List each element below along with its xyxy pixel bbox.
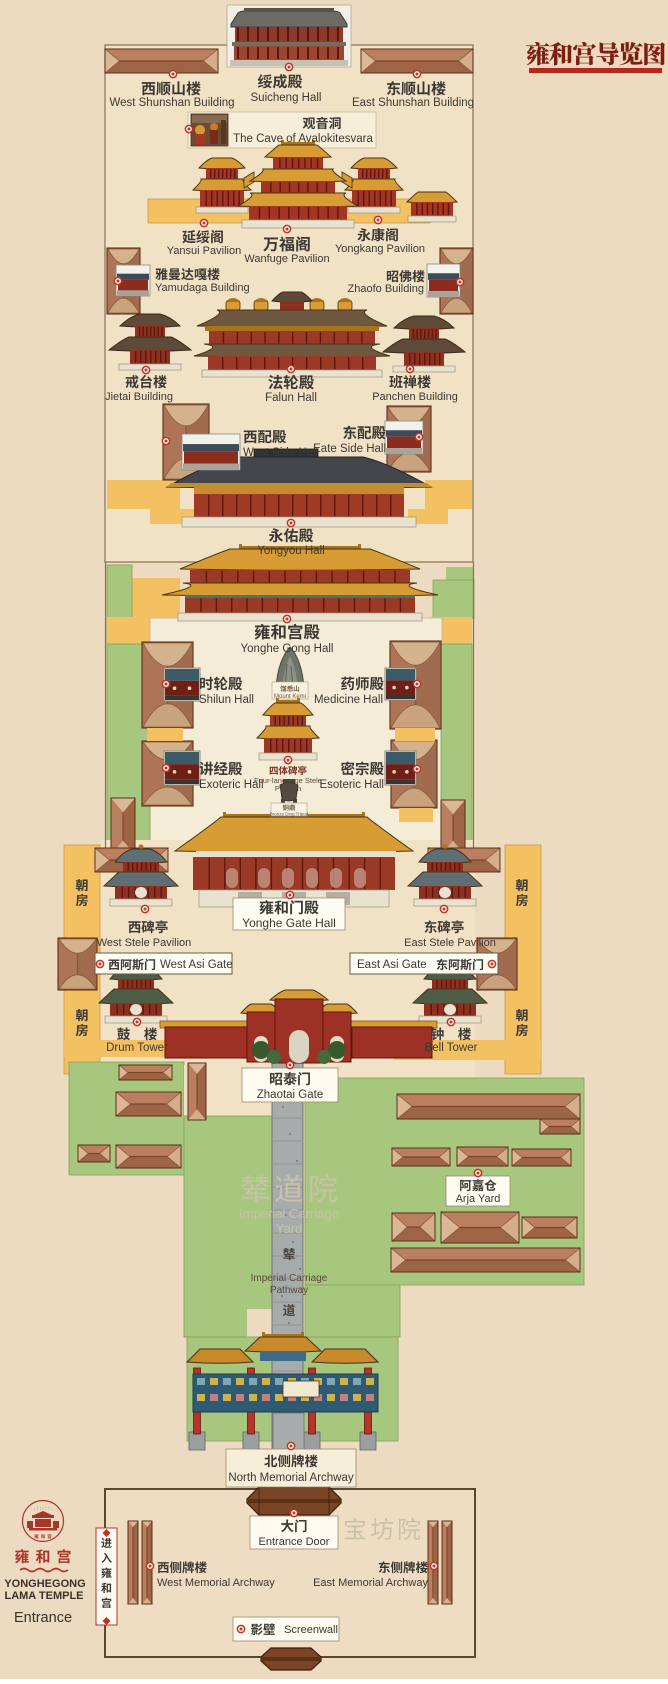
svg-text:West Stele Pavilion: West Stele Pavilion [97, 937, 192, 949]
svg-text:Medicine Hall: Medicine Hall [314, 694, 383, 706]
svg-text:YONGHEGONG: YONGHEGONG [4, 1578, 85, 1590]
svg-text:Yongyou Hall: Yongyou Hall [257, 545, 324, 557]
svg-text:Yamudaga Building: Yamudaga Building [155, 282, 250, 294]
svg-text:Shilun Hall: Shilun Hall [199, 694, 254, 706]
svg-text:Drum Tower: Drum Tower [106, 1042, 168, 1054]
svg-text:Imperial Carriage: Imperial Carriage [239, 1206, 339, 1221]
svg-text:LAMA TEMPLE: LAMA TEMPLE [4, 1590, 83, 1602]
svg-text:Suicheng Hall: Suicheng Hall [251, 92, 322, 104]
svg-text:East Stele Pavilion: East Stele Pavilion [404, 937, 496, 949]
svg-text:Panchen Building: Panchen Building [372, 391, 458, 403]
svg-text:Falun Hall: Falun Hall [265, 392, 317, 404]
svg-text:Screenwall: Screenwall [284, 1624, 338, 1636]
svg-text:The Cave of Avalokitesvara: The Cave of Avalokitesvara [233, 133, 373, 145]
svg-text:Jietai Building: Jietai Building [105, 391, 173, 403]
svg-text:Exoteric Hall: Exoteric Hall [199, 779, 264, 791]
svg-text:Bronze Ding Tripod: Bronze Ding Tripod [270, 812, 309, 817]
svg-text:Arja Yard: Arja Yard [456, 1193, 501, 1205]
svg-text:Pavilion: Pavilion [275, 784, 301, 793]
svg-text:Yansui Pavilion: Yansui Pavilion [167, 245, 241, 257]
svg-text:Eate Side Hall: Eate Side Hall [313, 443, 386, 455]
svg-text:Pathway: Pathway [270, 1285, 308, 1296]
svg-text:Zhaotai Gate: Zhaotai Gate [257, 1089, 323, 1101]
svg-text:Bell Tower: Bell Tower [425, 1042, 478, 1054]
svg-text:Wanfuge Pavilion: Wanfuge Pavilion [244, 253, 329, 265]
svg-text:Yard: Yard [276, 1221, 303, 1236]
svg-text:West Side Hall: West Side Hall [243, 447, 318, 459]
svg-text:Yongkang Pavilion: Yongkang Pavilion [335, 243, 425, 255]
svg-text:West Shunshan Building: West Shunshan Building [109, 97, 234, 109]
svg-text:North Memorial Archway: North Memorial Archway [228, 1472, 354, 1484]
svg-text:Entrance: Entrance [14, 1610, 72, 1626]
svg-text:East Asi Gate: East Asi Gate [357, 959, 427, 971]
svg-text:East Memorial Archway: East Memorial Archway [313, 1577, 428, 1589]
svg-text:West Asi Gate: West Asi Gate [160, 959, 233, 971]
svg-text:Zhaofo Building: Zhaofo Building [348, 283, 424, 295]
svg-text:Imperial Carriage: Imperial Carriage [251, 1273, 328, 1284]
svg-text:Yonghe Gate Hall: Yonghe Gate Hall [242, 916, 336, 930]
svg-text:Yonghe Gong Hall: Yonghe Gong Hall [241, 643, 334, 655]
svg-text:Mount Kemi: Mount Kemi [274, 694, 306, 700]
svg-text:East Shunshan Building: East Shunshan Building [352, 97, 474, 109]
svg-text:Entrance Door: Entrance Door [259, 1536, 330, 1548]
svg-text:Esoteric Hall: Esoteric Hall [319, 779, 384, 791]
svg-text:West Memorial Archway: West Memorial Archway [157, 1577, 275, 1589]
